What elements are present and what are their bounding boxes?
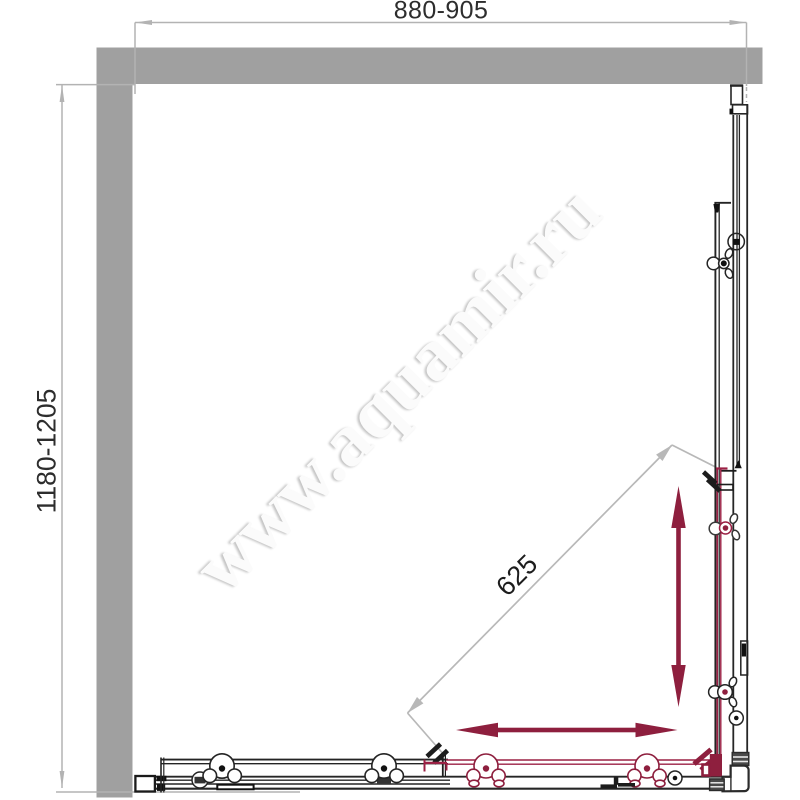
svg-text:www.aquamir.ru: www.aquamir.ru xyxy=(178,169,618,609)
svg-text:1180-1205: 1180-1205 xyxy=(32,389,62,514)
svg-text:625: 625 xyxy=(490,549,543,602)
svg-text:880-905: 880-905 xyxy=(394,0,489,25)
